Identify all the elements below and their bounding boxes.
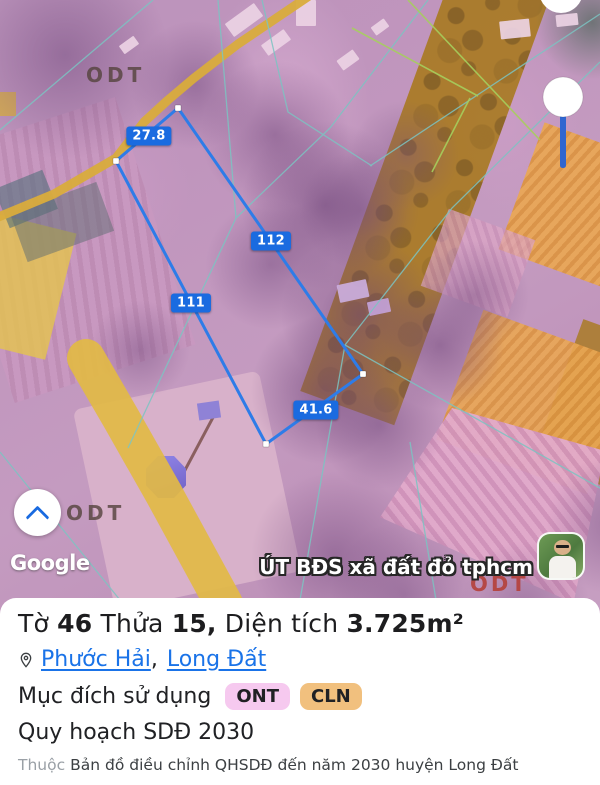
location-separator: , [151,647,158,672]
ward-link[interactable]: Phước Hải [41,647,151,672]
avatar-shirt [549,556,576,578]
source-text: Bản đồ điều chỉnh QHSDĐ đến năm 2030 huy… [70,756,518,774]
land-use-badge-cln[interactable]: CLN [300,683,362,710]
location-row: Phước Hải, Long Đất [18,647,582,672]
map-marker[interactable] [543,77,583,168]
sheet-number: 46 [57,609,92,638]
planning-grid-lines [352,0,540,172]
watermark-text: ÚT BĐS xã đất đỏ tphcm [259,555,533,579]
avatar-sunglasses [556,545,569,548]
app-screen: ODT ODT ODT 27.8 112 111 41.6 Google ÚT … [0,0,600,785]
land-use-badge-ont[interactable]: ONT [225,683,290,710]
land-use-row: Mục đích sử dụng ONT CLN [18,683,582,710]
sheet-label: Tờ [18,609,49,638]
measurement-label: 111 [171,294,211,313]
measurement-label: 27.8 [126,127,171,146]
chevron-up-icon [25,505,49,529]
zone-label-odt-pond: ODT [66,501,125,525]
location-pin-icon [18,650,34,670]
land-use-label: Mục đích sử dụng [18,684,211,709]
district-link[interactable]: Long Đất [167,647,266,672]
map-view[interactable]: ODT ODT ODT 27.8 112 111 41.6 Google ÚT … [0,0,600,615]
source-prefix: Thuộc [18,756,65,774]
zone-label-odt-top: ODT [86,63,145,87]
parcel-title: Tờ 46 Thửa 15, Diện tích 3.725m² [18,609,582,638]
collapse-panel-button[interactable] [14,489,61,536]
parcel-info-panel: Tờ 46 Thửa 15, Diện tích 3.725m² Phước H… [0,598,600,785]
watermark-avatar [537,532,585,580]
measurement-label: 41.6 [293,401,338,420]
area-label: Diện tích [225,609,339,638]
area-value: 3.725m² [346,609,463,638]
planning-row: Quy hoạch SDĐ 2030 [18,720,582,745]
parcel-number: 15, [172,609,217,638]
google-logo: Google [10,551,90,575]
source-row: ThuộcBản đồ điều chỉnh QHSDĐ đến năm 203… [18,756,582,774]
parcel-label: Thửa [100,609,163,638]
measurement-label: 112 [251,232,291,251]
top-edge-marker [539,0,583,13]
